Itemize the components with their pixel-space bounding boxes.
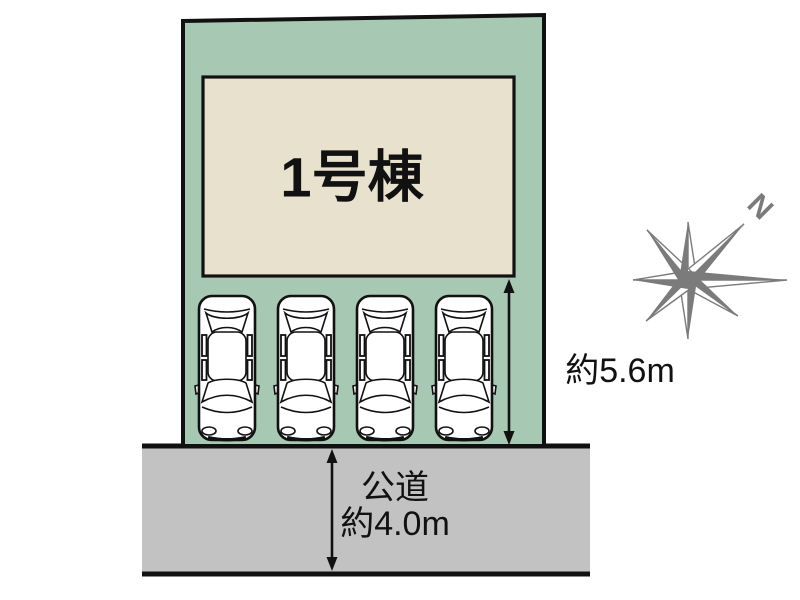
car	[432, 296, 496, 440]
compass-north-icon: N	[633, 188, 787, 339]
road-name-label: 公道	[361, 469, 429, 507]
road-width-label: 約4.0m	[340, 505, 450, 543]
parking-depth-label: 約5.6m	[565, 352, 675, 390]
car	[353, 296, 417, 440]
site-plan-canvas: 1号棟 約5.6m 公道 約4.0m	[0, 0, 800, 600]
car	[274, 296, 338, 440]
site-plan-drawing: 1号棟 約5.6m 公道 約4.0m	[0, 0, 800, 600]
north-label: N	[741, 188, 780, 227]
building-block: 1号棟	[203, 77, 514, 276]
building-label: 1号棟	[280, 146, 424, 209]
car	[195, 296, 259, 440]
